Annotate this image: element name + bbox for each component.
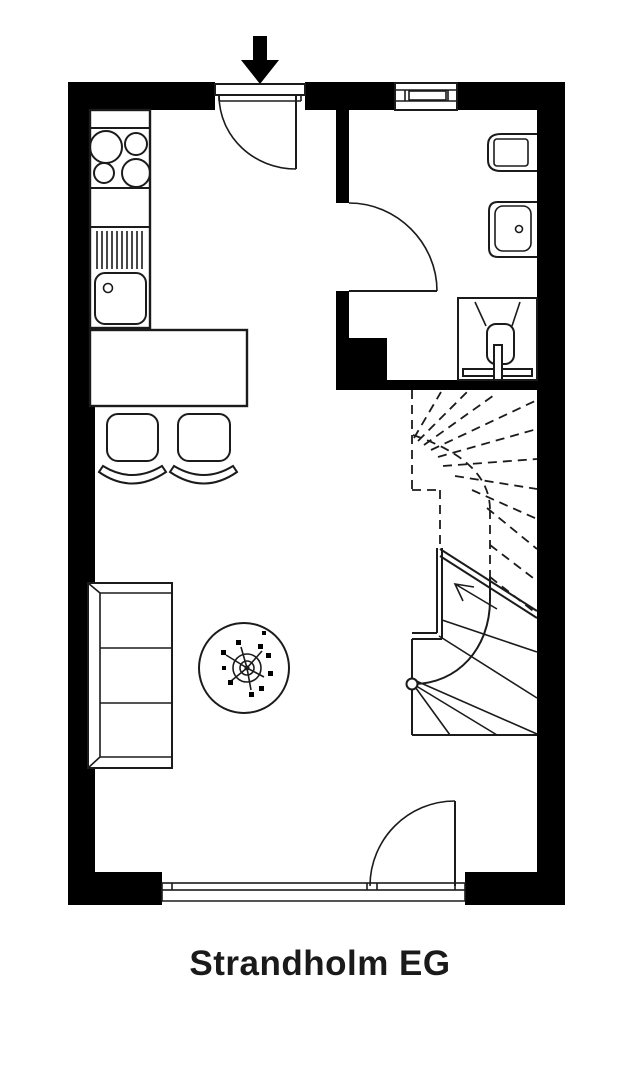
staircase-upper-dashed: [412, 390, 537, 614]
floorplan-page: Strandholm EG: [0, 0, 640, 1087]
plan-title: Strandholm EG: [0, 944, 640, 984]
shower-icon: [458, 298, 537, 380]
sink-icon: [95, 273, 146, 324]
toilet-icon: [488, 134, 537, 171]
entrance: [215, 36, 305, 169]
living-area: [88, 583, 289, 768]
sofa-icon: [88, 583, 172, 768]
terrace-window-band: [162, 883, 465, 901]
floorplan-drawing: [0, 0, 640, 1087]
bathroom-window: [395, 83, 457, 110]
newel-post-icon: [407, 679, 418, 690]
winder-staircase: [407, 390, 538, 735]
washbasin-icon: [489, 202, 537, 257]
terrace-door: [370, 801, 455, 886]
dining-table: [90, 330, 247, 406]
round-table-icon: [199, 623, 289, 713]
entrance-door: [215, 84, 305, 169]
chair-icon: [170, 414, 237, 484]
bathroom-door: [349, 203, 437, 291]
chair-icon: [99, 414, 166, 484]
entrance-arrow-icon: [241, 36, 279, 84]
stair-cut-line: [440, 549, 537, 618]
kitchen: [90, 110, 150, 328]
dining-area: [90, 330, 247, 484]
bathroom: [458, 134, 537, 380]
